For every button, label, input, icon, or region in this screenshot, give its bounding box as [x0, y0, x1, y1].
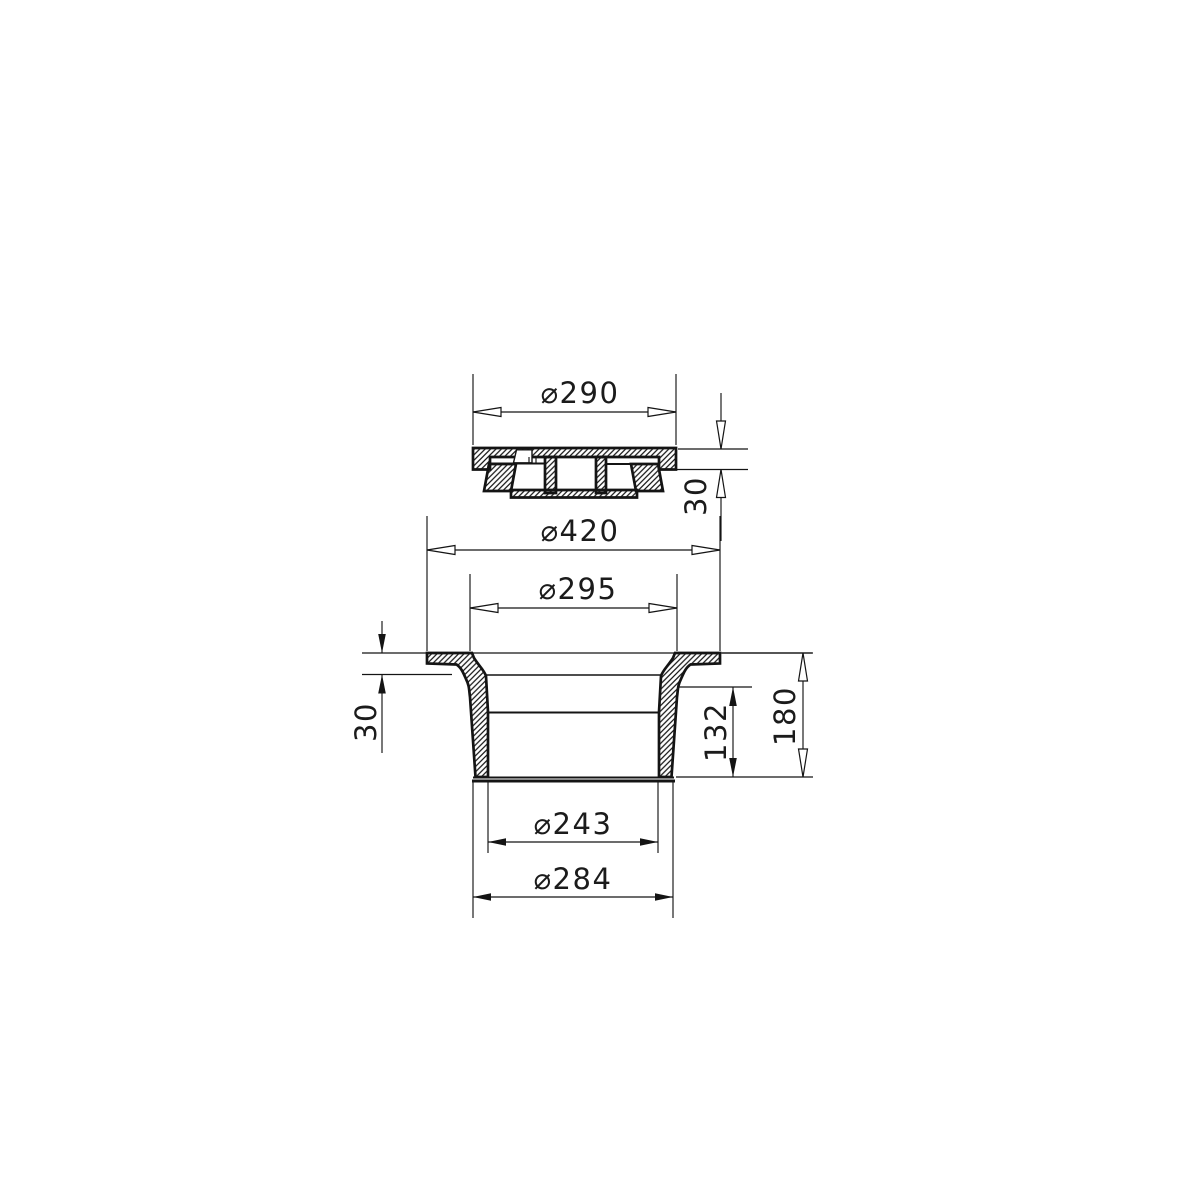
dim-arrow-right — [648, 408, 676, 417]
dim-arrow-right — [640, 838, 658, 846]
dim-extension-lines — [473, 782, 673, 918]
dim-arrow-bottom — [378, 675, 386, 694]
dim-total-height: 180 — [676, 653, 813, 777]
dim-arrow-right — [692, 546, 720, 555]
dim-seat-depth: 30 — [349, 621, 452, 753]
dim-label-lid-edge-height: 30 — [679, 476, 713, 516]
dim-lid-diameter: ⌀290 — [473, 374, 676, 445]
frame-left-wall-section — [427, 653, 488, 777]
dim-arrow-left — [427, 546, 455, 555]
dim-arrow-left — [488, 838, 506, 846]
dim-label-flange-diameter: ⌀420 — [541, 514, 620, 548]
dim-arrow-top — [799, 653, 808, 681]
dim-clear-opening: ⌀295 — [470, 572, 677, 651]
dim-label-clear-opening: ⌀295 — [539, 572, 618, 606]
frame-cross-section — [362, 653, 812, 781]
lid-rib-right-section — [596, 457, 606, 493]
lid-cross-section — [473, 448, 676, 498]
dim-arrow-right — [655, 893, 673, 901]
lid-right-foot-section — [631, 464, 663, 491]
dim-label-inner-diameter: ⌀243 — [534, 807, 613, 841]
dim-lower-body-height: 132 — [679, 687, 752, 777]
dim-inner-diameter: ⌀243 — [488, 782, 658, 853]
dim-label-seat-depth: 30 — [349, 702, 383, 742]
dim-outer-diameter: ⌀284 — [473, 782, 673, 918]
dim-arrow-top — [717, 421, 726, 449]
dim-label-lid-diameter: ⌀290 — [541, 376, 620, 410]
dim-arrow-right — [649, 604, 677, 613]
lid-left-foot-section — [484, 464, 516, 491]
dim-label-lower-body-height: 132 — [699, 702, 733, 762]
dim-arrow-top — [378, 634, 386, 653]
lid-bottom-pan-section — [511, 490, 637, 498]
dim-arrow-left — [470, 604, 498, 613]
dim-label-total-height: 180 — [768, 686, 802, 746]
technical-drawing-canvas: ⌀290 30 ⌀420 ⌀295 30 132 — [0, 0, 1200, 1200]
dim-arrow-bottom — [799, 749, 808, 777]
drawing-svg: ⌀290 30 ⌀420 ⌀295 30 132 — [0, 0, 1200, 1200]
lid-rib-left-section — [545, 457, 556, 493]
dim-arrow-left — [473, 893, 491, 901]
dim-label-outer-diameter: ⌀284 — [534, 862, 613, 896]
dim-arrow-left — [473, 408, 501, 417]
dim-arrow-bottom — [717, 470, 726, 498]
